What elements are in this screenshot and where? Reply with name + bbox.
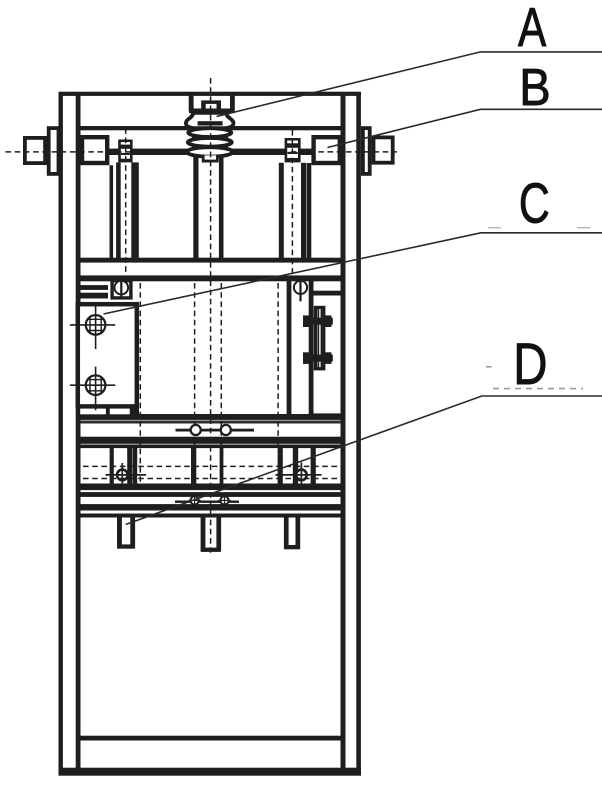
svg-text:C: C <box>519 172 550 235</box>
svg-text:D: D <box>513 333 547 398</box>
svg-text:A: A <box>518 0 547 58</box>
svg-text:B: B <box>519 58 550 117</box>
